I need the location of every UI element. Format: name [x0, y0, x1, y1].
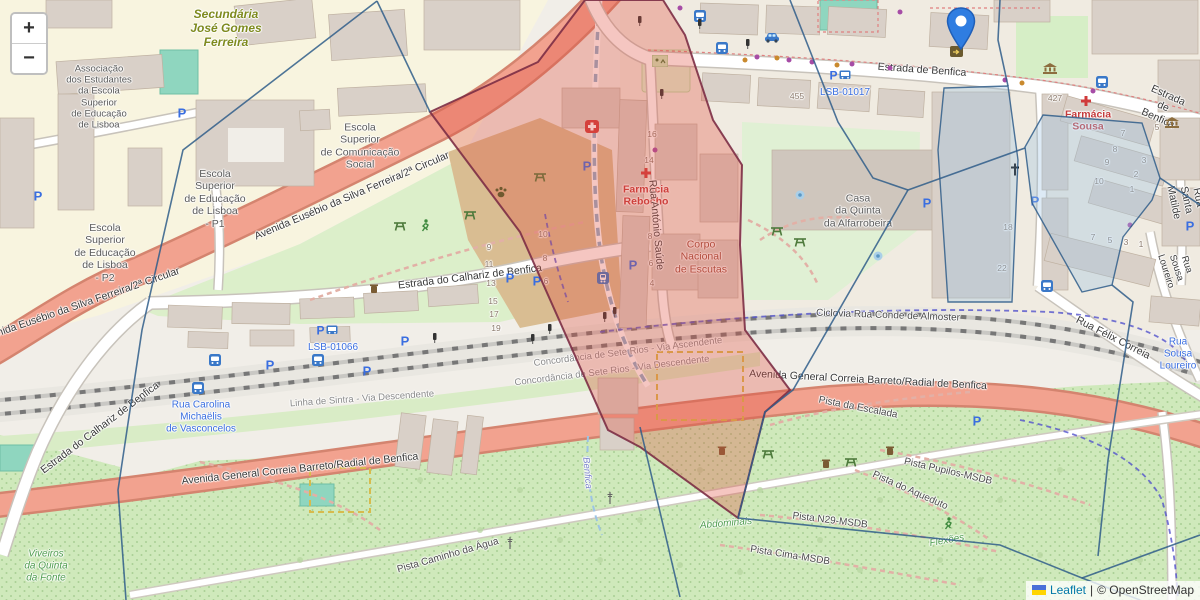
zone-boundary-line[interactable]: [377, 1, 430, 112]
map-canvas[interactable]: Secundária José Gomes FerreiraAssociação…: [0, 0, 1200, 600]
blue-zone-polygon[interactable]: [1025, 115, 1160, 292]
leaflet-link[interactable]: Leaflet: [1050, 583, 1086, 597]
ukraine-flag-icon: [1032, 585, 1046, 595]
zone-boundary-line[interactable]: [1160, 178, 1200, 205]
zone-boundary-line[interactable]: [998, 0, 1008, 86]
map-marker-pin[interactable]: [946, 7, 976, 57]
zoom-in-button[interactable]: +: [12, 14, 46, 44]
overlay-polygons[interactable]: [0, 0, 1200, 600]
copyright-text: © OpenStreetMap: [1097, 583, 1194, 597]
red-zone-polygon[interactable]: [430, 0, 790, 518]
blue-zone-polygon[interactable]: [938, 86, 1018, 302]
zone-boundary-line[interactable]: [118, 1, 377, 600]
attribution-bar: Leaflet | © OpenStreetMap: [1026, 581, 1200, 600]
zoom-out-button[interactable]: −: [12, 44, 46, 73]
zoom-control: + −: [10, 12, 48, 75]
attribution-separator: |: [1090, 583, 1093, 597]
zone-boundary-line[interactable]: [790, 0, 908, 190]
zone-boundary-line[interactable]: [1098, 285, 1133, 556]
